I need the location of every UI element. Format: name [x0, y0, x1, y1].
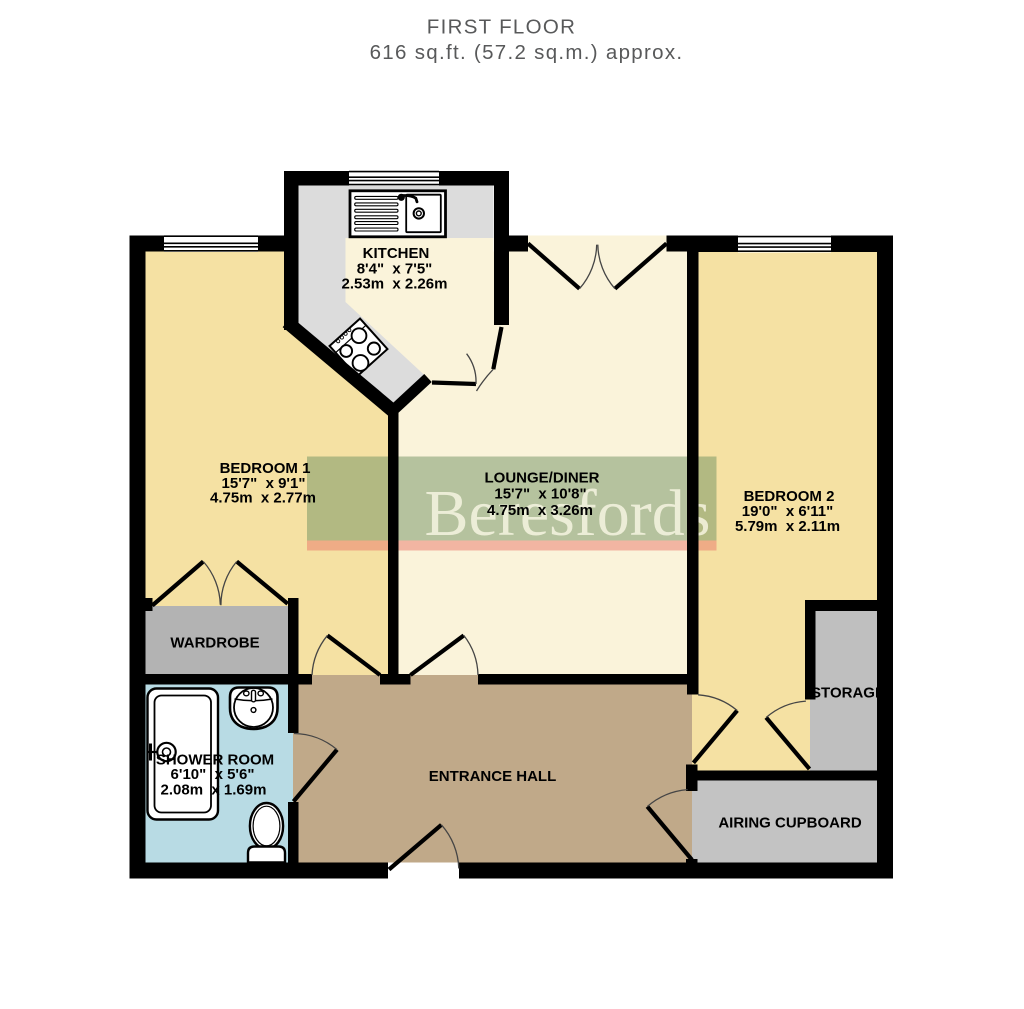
- svg-text:2.08m x 1.69m: 2.08m x 1.69m: [161, 782, 267, 799]
- svg-text:4.75m x 3.26m: 4.75m x 3.26m: [487, 502, 593, 519]
- svg-text:STORAGE: STORAGE: [811, 684, 885, 701]
- svg-text:LOUNGE/DINER: LOUNGE/DINER: [484, 469, 599, 486]
- svg-text:WARDROBE: WARDROBE: [170, 635, 259, 652]
- svg-text:616 sq.ft. (57.2 sq.m.) approx: 616 sq.ft. (57.2 sq.m.) approx.: [370, 41, 684, 64]
- svg-text:ENTRANCE HALL: ENTRANCE HALL: [429, 768, 557, 785]
- svg-text:FIRST FLOOR: FIRST FLOOR: [427, 16, 576, 39]
- svg-text:4.75m x 2.77m: 4.75m x 2.77m: [210, 490, 316, 507]
- svg-text:2.53m x 2.26m: 2.53m x 2.26m: [342, 276, 448, 293]
- svg-text:6'10" x 5'6": 6'10" x 5'6": [171, 766, 255, 783]
- svg-text:5.79m x 2.11m: 5.79m x 2.11m: [735, 518, 840, 535]
- svg-text:AIRING CUPBOARD: AIRING CUPBOARD: [718, 815, 862, 832]
- svg-text:15'7" x 10'8": 15'7" x 10'8": [494, 486, 586, 503]
